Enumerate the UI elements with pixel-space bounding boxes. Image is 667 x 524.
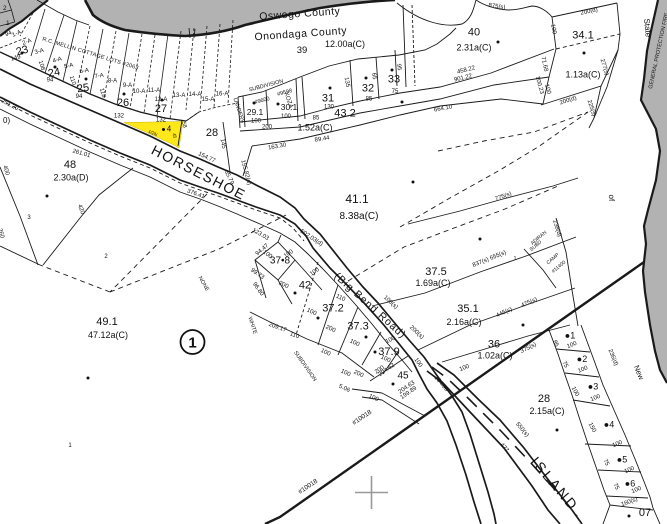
svg-text:28: 28 xyxy=(538,393,550,405)
svg-text:42: 42 xyxy=(299,280,311,292)
svg-text:2.15a(C): 2.15a(C) xyxy=(529,406,564,416)
svg-text:43.2: 43.2 xyxy=(334,108,355,120)
svg-text:100: 100 xyxy=(251,119,262,125)
svg-text:12.00a(C): 12.00a(C) xyxy=(325,39,365,49)
svg-text:15-A: 15-A xyxy=(202,97,215,103)
svg-text:1: 1 xyxy=(188,335,196,352)
svg-text:27: 27 xyxy=(155,103,167,115)
svg-text:07: 07 xyxy=(639,507,651,519)
svg-text:9-A: 9-A xyxy=(123,83,132,89)
svg-text:2.30a(D): 2.30a(D) xyxy=(53,173,88,183)
svg-text:2.16a(C): 2.16a(C) xyxy=(446,317,481,327)
svg-text:4: 4 xyxy=(167,125,172,134)
svg-text:33: 33 xyxy=(388,74,400,86)
svg-text:14-A: 14-A xyxy=(189,92,202,98)
svg-text:1.52a(C): 1.52a(C) xyxy=(297,123,332,133)
svg-text:●5: ●5 xyxy=(617,455,627,465)
svg-text:45: 45 xyxy=(397,371,409,382)
svg-text:28: 28 xyxy=(206,127,218,139)
svg-text:29.1: 29.1 xyxy=(247,107,264,117)
svg-text:●4: ●4 xyxy=(604,420,614,430)
svg-text:●3: ●3 xyxy=(588,382,598,392)
svg-text:16-A: 16-A xyxy=(216,92,229,98)
svg-text:39: 39 xyxy=(297,45,308,56)
svg-text:of: of xyxy=(607,194,616,202)
svg-text:94: 94 xyxy=(47,78,54,84)
svg-text:49.1: 49.1 xyxy=(96,316,117,328)
svg-text:31: 31 xyxy=(322,93,334,105)
svg-text:11-A: 11-A xyxy=(148,88,160,94)
svg-text:37.5: 37.5 xyxy=(425,266,446,278)
svg-text:94: 94 xyxy=(76,94,83,100)
svg-text:30.1: 30.1 xyxy=(281,102,298,112)
svg-text:State: State xyxy=(642,18,653,38)
svg-text:2: 2 xyxy=(3,5,7,12)
svg-text:37.3: 37.3 xyxy=(347,321,368,333)
svg-text:26: 26 xyxy=(117,97,129,109)
svg-text:1.69a(C): 1.69a(C) xyxy=(415,278,450,288)
svg-text:1: 1 xyxy=(6,20,10,27)
svg-text:1: 1 xyxy=(514,256,517,262)
svg-text:13-A: 13-A xyxy=(173,93,186,99)
svg-text:47.12a(C): 47.12a(C) xyxy=(88,330,128,340)
svg-text:●6: ●6 xyxy=(625,479,635,489)
svg-text:10-A: 10-A xyxy=(133,89,146,95)
svg-text:41.1: 41.1 xyxy=(345,192,369,206)
svg-text:●2: ●2 xyxy=(577,354,587,364)
svg-text:1.02a(C): 1.02a(C) xyxy=(477,351,512,361)
svg-text:37.2: 37.2 xyxy=(322,303,343,315)
svg-text:1.13a(C): 1.13a(C) xyxy=(565,70,600,80)
svg-text:8.38a(C): 8.38a(C) xyxy=(340,211,379,222)
svg-text:●1: ●1 xyxy=(565,331,575,341)
svg-text:132: 132 xyxy=(156,118,167,124)
svg-text:8-A: 8-A xyxy=(108,79,117,85)
svg-text:132: 132 xyxy=(114,114,125,120)
svg-text:2.31a(C): 2.31a(C) xyxy=(456,43,491,53)
svg-text:35.1: 35.1 xyxy=(457,303,478,315)
svg-text:85: 85 xyxy=(313,116,320,122)
svg-text:34.1: 34.1 xyxy=(572,30,593,42)
svg-text:48: 48 xyxy=(64,159,76,171)
svg-text:32: 32 xyxy=(362,83,374,95)
svg-text:0): 0) xyxy=(3,116,10,125)
svg-text:36: 36 xyxy=(488,339,500,351)
svg-text:40: 40 xyxy=(468,27,480,39)
